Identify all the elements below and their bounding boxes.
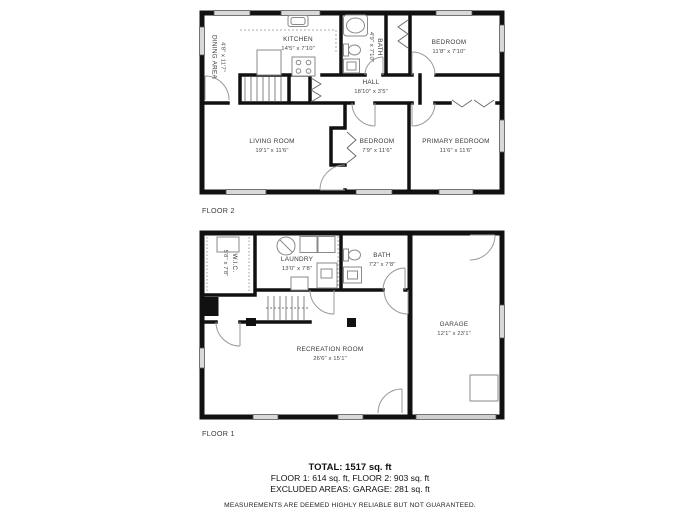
disclaimer-text: MEASUREMENTS ARE DEEMED HIGHLY RELIABLE … [0, 502, 700, 509]
door-arc [352, 103, 375, 126]
stairs-symbol [245, 77, 281, 101]
door-arc [216, 322, 240, 346]
room-dims: 4'8" x 11'7" [220, 42, 226, 72]
chimney-block [200, 297, 219, 316]
room-label-bedroom-top: BEDROOM 11'8" x 7'10" [432, 39, 467, 55]
room-name: PRIMARY BEDROOM [422, 138, 489, 145]
room-dims: 26'6" x 15'1" [313, 356, 347, 362]
room-dims: 7'2" x 7'8" [369, 262, 396, 268]
window-symbol [200, 27, 205, 55]
room-label-kitchen: KITCHEN 14'5" x 7'10" [281, 36, 315, 52]
room-dims: 4'9" x 7'10" [368, 32, 374, 62]
dryer-symbol [318, 237, 335, 253]
window-symbol [200, 348, 205, 368]
stove-symbol [292, 57, 315, 76]
room-dims: 19'1" x 11'6" [255, 148, 288, 154]
bifold-door-symbol [347, 132, 356, 163]
floorplan-page: { "floors": [ { "label": "FLOOR 2", "roo… [0, 0, 700, 525]
room-name: BEDROOM [360, 138, 395, 145]
window-symbol [338, 415, 363, 420]
toilet-symbol [349, 250, 361, 260]
wall-post [347, 318, 356, 327]
floorplan-drawing: DINING AREA 4'8" x 11'7" KITCHEN 14'5" x… [0, 0, 700, 525]
door-arc [412, 103, 435, 126]
room-label-dining-area: DINING AREA 4'8" x 11'7" [211, 35, 226, 79]
room-name: GARAGE [440, 321, 469, 328]
room-label-bath-floor1: BATH 7'2" x 7'8" [369, 252, 396, 268]
wall-post [246, 318, 256, 326]
room-name: RECREATION ROOM [297, 346, 364, 353]
room-dims: 11'6" x 11'6" [440, 148, 473, 154]
toilet-symbol [344, 249, 349, 261]
water-heater-symbol [470, 375, 498, 401]
room-name: KITCHEN [283, 36, 313, 43]
door-arc [412, 52, 435, 75]
room-label-wic: W.I.C. 5'8" x 7'8" [222, 250, 238, 277]
floor-areas-text: FLOOR 1: 614 sq. ft, FLOOR 2: 903 sq. ft [0, 473, 700, 484]
room-name: LAUNDRY [281, 256, 314, 263]
summary-footer: TOTAL: 1517 sq. ft FLOOR 1: 614 sq. ft, … [0, 462, 700, 509]
room-label-laundry: LAUNDRY 13'0" x 7'8" [281, 256, 314, 272]
window-symbol [500, 25, 505, 52]
bifold-door-symbol [452, 100, 494, 107]
floor1-plan: W.I.C. 5'8" x 7'8" LAUNDRY 13'0" x 7'8" … [200, 233, 505, 438]
room-label-bedroom-mid: BEDROOM 7'9" x 11'6" [360, 138, 395, 154]
door-arc [378, 389, 402, 413]
room-label-hall: HALL 18'10" x 3'5" [354, 79, 388, 95]
door-arc [470, 235, 495, 260]
window-symbol [226, 190, 266, 195]
door-arc [205, 76, 229, 100]
door-arc [383, 268, 405, 290]
laundry-tub-symbol [291, 277, 308, 290]
room-name: BEDROOM [432, 39, 467, 46]
floor2-doors [205, 52, 435, 190]
bifold-door-symbol [398, 20, 408, 48]
window-symbol [439, 190, 473, 195]
room-name: LIVING ROOM [249, 138, 294, 145]
bathroom-sink-symbol [347, 62, 356, 70]
laundry-sink-symbol [321, 269, 332, 278]
room-dims: 14'5" x 7'10" [281, 46, 315, 52]
window-symbol [500, 120, 505, 152]
window-symbol [214, 11, 250, 16]
garage-door-symbol [416, 415, 496, 420]
room-dims: 13'0" x 7'8" [282, 266, 312, 272]
room-label-recreation-room: RECREATION ROOM 26'6" x 15'1" [297, 346, 364, 362]
bathroom-sink-symbol [348, 271, 358, 279]
room-name: HALL [363, 79, 380, 86]
room-label-living-room: LIVING ROOM 19'1" x 11'6" [249, 138, 294, 154]
bifold-door-symbol [311, 78, 321, 102]
door-arc [310, 290, 334, 314]
window-symbol [500, 305, 505, 338]
total-area-text: TOTAL: 1517 sq. ft [0, 462, 700, 473]
room-label-garage: GARAGE 12'1" x 23'1" [437, 321, 471, 337]
window-symbol [436, 11, 472, 16]
floor2-plan: DINING AREA 4'8" x 11'7" KITCHEN 14'5" x… [200, 11, 505, 216]
window-symbol [281, 11, 320, 16]
floor2-label: FLOOR 2 [202, 206, 235, 215]
room-dims: 7'9" x 11'6" [362, 148, 392, 154]
kitchen-sink-symbol [291, 18, 305, 25]
door-arc [320, 165, 345, 190]
room-dims: 5'8" x 7'8" [222, 250, 228, 277]
floor1-room-labels: W.I.C. 5'8" x 7'8" LAUNDRY 13'0" x 7'8" … [222, 250, 471, 362]
room-label-primary-bedroom: PRIMARY BEDROOM 11'6" x 11'6" [422, 138, 489, 154]
window-symbol [253, 415, 278, 420]
floor2-stairs [245, 77, 281, 101]
room-name: BATH [373, 252, 391, 259]
dryer-symbol [300, 237, 317, 253]
room-dims: 12'1" x 23'1" [437, 331, 471, 337]
window-symbol [356, 190, 392, 195]
toilet-symbol [349, 45, 361, 55]
room-name: BATH [376, 38, 383, 56]
excluded-areas-text: EXCLUDED AREAS: GARAGE: 281 sq. ft [0, 484, 700, 495]
room-name: W.I.C. [231, 254, 238, 273]
floor1-stairs [266, 296, 310, 320]
door-arc [384, 290, 408, 314]
room-dims: 18'10" x 3'5" [354, 89, 388, 95]
toilet-symbol [344, 44, 349, 56]
room-name: DINING AREA [211, 35, 218, 79]
room-dims: 11'8" x 7'10" [432, 49, 465, 55]
floor1-label: FLOOR 1 [202, 429, 235, 438]
fridge-symbol [257, 50, 281, 75]
